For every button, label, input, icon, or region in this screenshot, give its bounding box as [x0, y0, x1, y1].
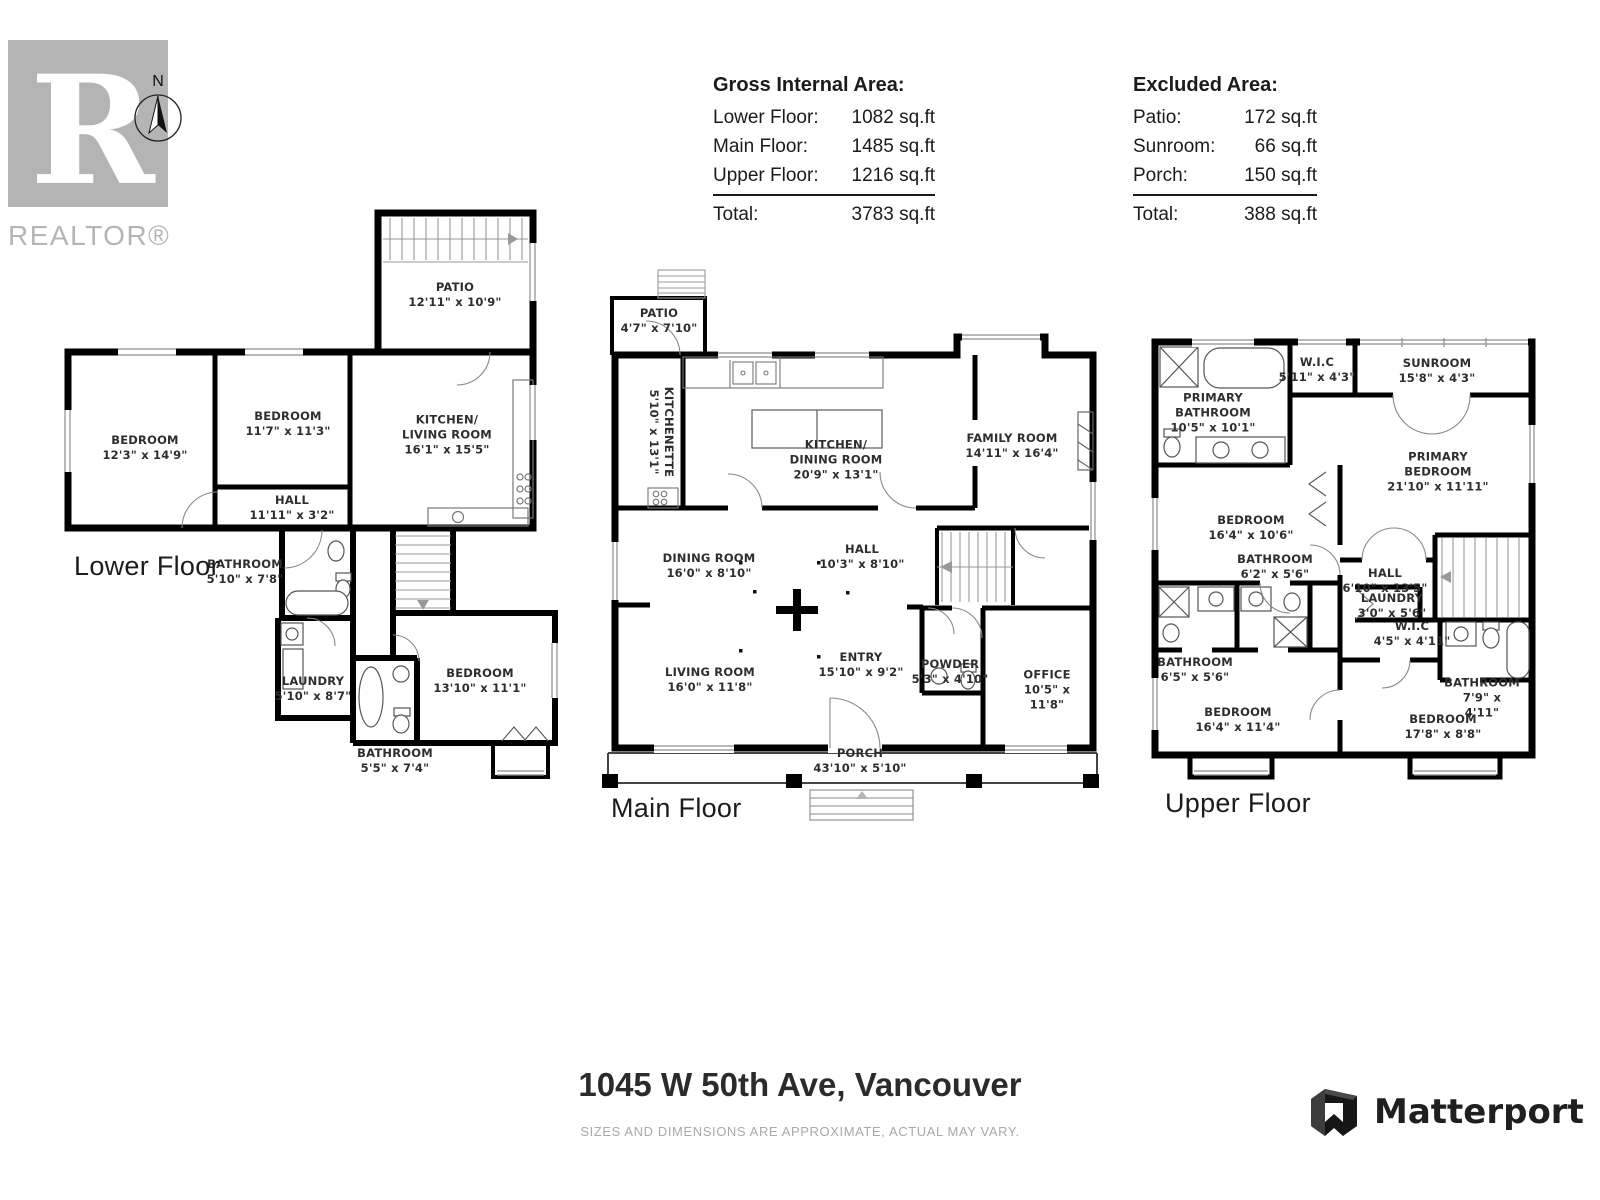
property-address: 1045 W 50th Ave, Vancouver: [578, 1066, 1021, 1104]
upper-stairs: [1442, 538, 1519, 617]
gross-area-row: Main Floor: 1485 sq.ft: [713, 132, 935, 161]
excluded-area-total: Total: 388 sq.ft: [1133, 194, 1317, 229]
upper-floor-plan: PRIMARY BATHROOM10'5" x 10'1" W.I.C5'11"…: [1140, 330, 1540, 820]
room-label-patio: PATIO4'7" x 7'10": [621, 291, 698, 351]
room-label-powder: POWDER5'3" x 4'10": [912, 642, 989, 702]
floor-name-main: Main Floor: [611, 793, 742, 824]
room-label-bathroom: BATHROOM6'2" x 5'6": [1237, 537, 1313, 597]
floor-name-lower: Lower Floor: [74, 551, 220, 582]
svg-text:N: N: [152, 73, 164, 90]
floor-name-upper: Upper Floor: [1165, 788, 1311, 819]
disclaimer-text: SIZES AND DIMENSIONS ARE APPROXIMATE, AC…: [580, 1124, 1019, 1139]
excluded-area-row: Porch: 150 sq.ft: [1133, 161, 1317, 190]
room-label-patio: PATIO12'11" x 10'9": [408, 265, 501, 325]
room-label-kitchen-living: KITCHEN/ LIVING ROOM16'1" x 15'5": [402, 398, 492, 473]
closet-glyphs: [502, 727, 548, 741]
room-label-porch: PORCH43'10" x 5'10": [813, 731, 906, 791]
compass-icon: N: [128, 70, 188, 146]
stairs-arrow: [508, 233, 518, 245]
room-label-dining-room: DINING ROOM16'0" x 8'10": [663, 536, 756, 596]
excluded-area-summary: Excluded Area: Patio: 172 sq.ft Sunroom:…: [1133, 74, 1317, 229]
gross-area-summary: Gross Internal Area: Lower Floor: 1082 s…: [713, 74, 935, 229]
matterport-wordmark: Matterport: [1374, 1092, 1584, 1132]
gross-area-title: Gross Internal Area:: [713, 74, 935, 97]
room-label-sunroom: SUNROOM15'8" x 4'3": [1399, 341, 1476, 401]
room-label-bedroom: BEDROOM13'10" x 11'1": [433, 651, 526, 711]
room-label-laundry: LAUNDRY5'10" x 8'7": [275, 659, 352, 719]
matterport-logo: Matterport: [1308, 1086, 1584, 1138]
excluded-area-title: Excluded Area:: [1133, 74, 1317, 97]
gross-area-row: Upper Floor: 1216 sq.ft: [713, 161, 935, 190]
closet-glyphs: [1309, 472, 1326, 526]
gross-area-total: Total: 3783 sq.ft: [713, 194, 935, 229]
room-label-office: OFFICE10'5" x 11'8": [1016, 653, 1079, 728]
room-label-bedroom: BEDROOM11'7" x 11'3": [245, 394, 330, 454]
floorplan-page: R REALTOR® N Gross Internal Area: Lower …: [0, 0, 1600, 1200]
room-label-primary-bathroom: PRIMARY BATHROOM10'5" x 10'1": [1170, 376, 1255, 451]
room-label-bedroom: BEDROOM16'4" x 11'4": [1195, 690, 1280, 750]
room-label-entry: ENTRY15'10" x 9'2": [818, 635, 903, 695]
room-label-hall: HALL11'11" x 3'2": [249, 478, 334, 538]
room-label-wic: W.I.C4'5" x 4'11": [1374, 604, 1451, 664]
room-label-bathroom: BATHROOM5'5" x 7'4": [357, 731, 433, 791]
excluded-area-row: Sunroom: 66 sq.ft: [1133, 132, 1317, 161]
room-label-kitchenette: KITCHENETTE5'10" x 13'1": [631, 387, 691, 477]
main-floor-plan: PATIO4'7" x 7'10" KITCHENETTE5'10" x 13'…: [590, 260, 1110, 830]
room-label-family-room: FAMILY ROOM14'11" x 16'4": [965, 416, 1058, 476]
gross-area-row: Lower Floor: 1082 sq.ft: [713, 103, 935, 132]
room-label-primary-bedroom: PRIMARY BEDROOM21'10" x 11'11": [1387, 435, 1488, 510]
excluded-area-row: Patio: 172 sq.ft: [1133, 103, 1317, 132]
room-label-living-room: LIVING ROOM16'0" x 11'8": [665, 650, 755, 710]
room-label-bedroom: BEDROOM17'8" x 8'8": [1405, 697, 1482, 757]
room-label-wic: W.I.C5'11" x 4'3": [1279, 340, 1356, 400]
steps-arrow: [856, 791, 868, 799]
room-label-kitchen-dining: KITCHEN/ DINING ROOM20'9" x 13'1": [790, 423, 883, 498]
lower-floor-plan: PATIO12'11" x 10'9" BEDROOM12'3" x 14'9"…: [60, 205, 580, 785]
room-label-bedroom: BEDROOM12'3" x 14'9": [102, 418, 187, 478]
matterport-icon: [1308, 1086, 1360, 1138]
room-label-hall: HALL10'3" x 8'10": [819, 527, 904, 587]
